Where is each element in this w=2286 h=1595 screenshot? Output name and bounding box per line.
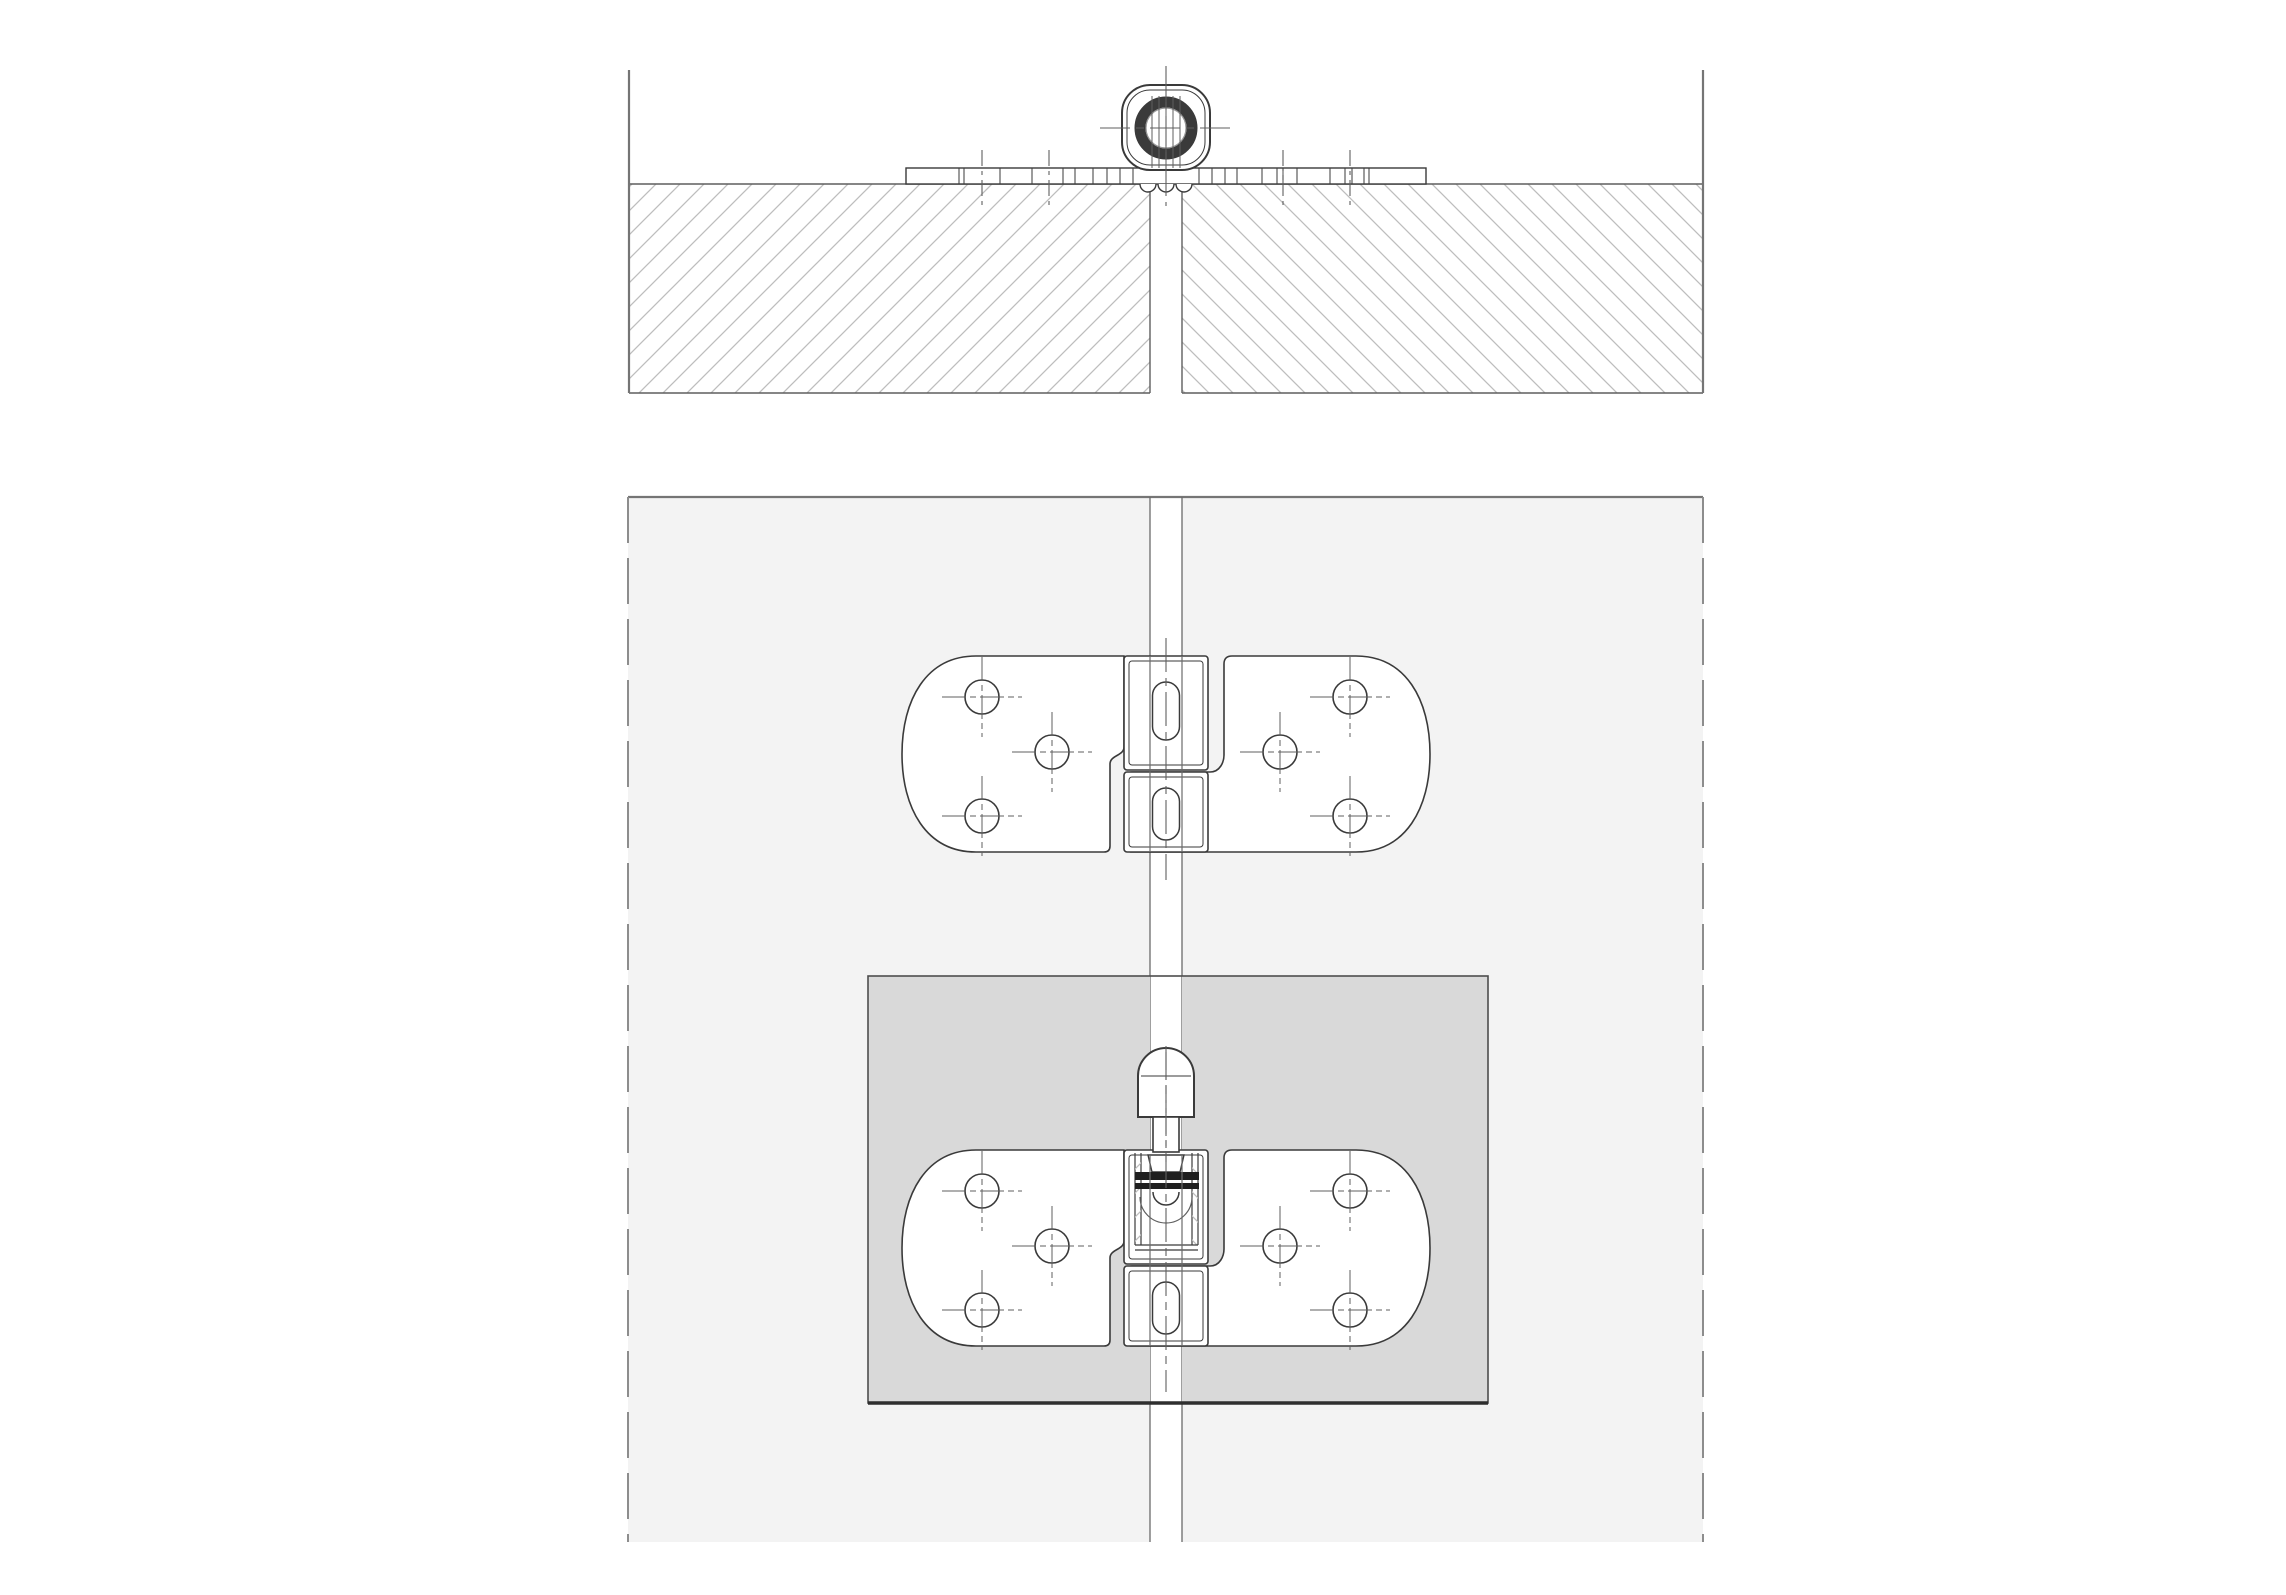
plan-view — [628, 497, 1703, 1542]
section-view — [629, 66, 1703, 393]
washer-band — [1135, 1172, 1199, 1180]
section-slabs — [629, 184, 1703, 393]
nut-band — [1135, 1183, 1199, 1189]
hinge-installation-drawing — [0, 0, 2286, 1595]
sectioned-wall-right — [1192, 1153, 1198, 1245]
drawing-page — [0, 0, 2286, 1595]
left-slab-hatch — [629, 184, 1150, 393]
left-leaf — [902, 656, 1124, 852]
right-slab-hatch — [1182, 184, 1703, 393]
left-leaf — [902, 1150, 1124, 1346]
